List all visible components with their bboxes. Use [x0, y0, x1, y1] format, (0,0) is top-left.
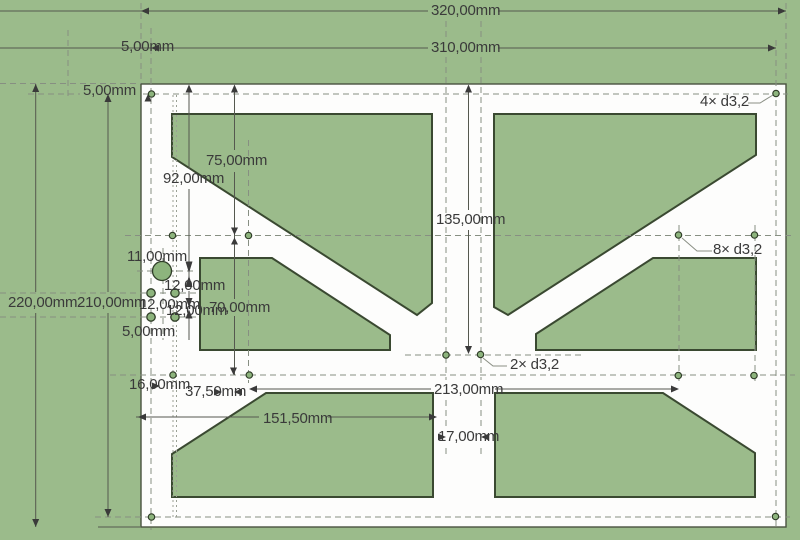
- dim-17: 17,00mm: [438, 429, 499, 445]
- dim-75: 75,00mm: [206, 153, 267, 169]
- dim-5-top: 5,00mm: [121, 39, 174, 55]
- dim-135: 135,00mm: [436, 212, 505, 228]
- cad-geometry: [0, 0, 800, 540]
- callout-4x: 4× d3,2: [700, 94, 749, 110]
- callout-8x: 8× d3,2: [713, 242, 762, 258]
- dim-151: 151,50mm: [263, 411, 332, 427]
- dim-11: 11,00mm: [127, 249, 187, 265]
- dim-320: 320,00mm: [431, 3, 500, 19]
- dim-12-a: 12,00mm: [164, 278, 225, 294]
- dim-16: 16,00mm: [129, 377, 190, 393]
- dim-210: 210,00mm: [77, 295, 146, 311]
- dim-220: 220,00mm: [8, 295, 77, 311]
- dim-70: 70,00mm: [209, 300, 270, 316]
- dim-5-c: 5,00mm: [122, 324, 175, 340]
- drawing-canvas[interactable]: 320,00mm310,00mm5,00mm5,00mm75,00mm92,00…: [0, 0, 800, 540]
- dim-37: 37,50mm: [185, 384, 246, 400]
- dim-310: 310,00mm: [431, 40, 500, 56]
- callout-2x: 2× d3,2: [510, 357, 559, 373]
- dim-92: 92,00mm: [163, 171, 224, 187]
- dim-213: 213,00mm: [434, 382, 503, 398]
- dim-5-left: 5,00mm: [83, 83, 136, 99]
